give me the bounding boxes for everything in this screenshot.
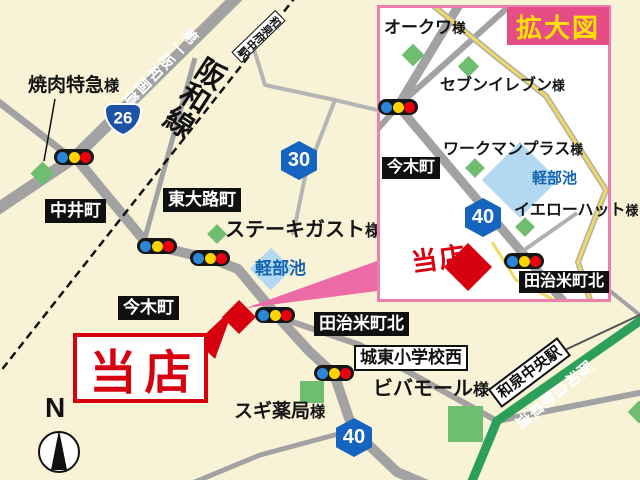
traffic-light-icon bbox=[54, 149, 94, 165]
route-26-badge: 26 bbox=[103, 102, 143, 136]
traffic-light-icon bbox=[190, 250, 230, 266]
inset-landmark-seven-eleven: セブンイレブン様 bbox=[440, 77, 565, 95]
town-higashioji: 東大路町 bbox=[163, 188, 241, 212]
town-joto-shogakko-nishi: 城東小学校西 bbox=[354, 345, 468, 371]
road-minor-north bbox=[253, 46, 377, 110]
town-tajirimachi-kita: 田治米町北 bbox=[314, 312, 409, 336]
landmark-yakiniku-tokkyu: 焼肉特急様 bbox=[28, 76, 119, 97]
compass-north-label: N bbox=[45, 392, 65, 424]
inset-landmark-okuwa: オークワ様 bbox=[384, 19, 466, 38]
access-map: 第一阪和国道 阪和線 和泉府中駅 阪和自動車道 和泉中央駅 軽部池 26 30 … bbox=[0, 0, 640, 480]
pond-karube-label: 軽部池 bbox=[255, 260, 306, 279]
landmark-steak-gusto: ステーキガスト様 bbox=[225, 219, 381, 241]
landmark-sugi-pharmacy: スギ薬局様 bbox=[234, 402, 325, 423]
landmark-viva-mall: ビバモール様 bbox=[373, 378, 489, 400]
traffic-light-icon bbox=[314, 365, 354, 381]
traffic-light-icon bbox=[255, 307, 295, 323]
inset-landmark-workman-plus: ワークマンプラス様 bbox=[443, 141, 583, 159]
traffic-light-icon bbox=[137, 238, 177, 254]
park-square bbox=[448, 406, 483, 442]
inset-enlarged-map: 40 オークワ様 セブンイレブン様 ワークマンプラス様 イエローハット様 軽部池… bbox=[377, 5, 611, 302]
park-square bbox=[300, 381, 324, 403]
inset-store-label: 当店 bbox=[409, 235, 470, 279]
store-label-box: 当店 bbox=[73, 333, 208, 403]
road-corner bbox=[610, 291, 640, 320]
inset-town-tajirimachi-kita: 田治米町北 bbox=[519, 271, 609, 293]
inset-traffic-light-icon bbox=[504, 253, 544, 269]
inset-traffic-light-icon bbox=[378, 99, 418, 115]
town-nakai: 中井町 bbox=[45, 199, 106, 223]
svg-text:26: 26 bbox=[114, 109, 133, 128]
leader-line bbox=[44, 99, 55, 161]
town-imaki: 今木町 bbox=[118, 296, 179, 320]
inset-title: 拡大図 bbox=[507, 7, 609, 45]
road-bottom-connector bbox=[185, 430, 353, 480]
inset-town-imaki: 今木町 bbox=[382, 157, 440, 179]
store-location-diamond bbox=[222, 300, 256, 334]
inset-pond-karube-label: 軽部池 bbox=[532, 171, 577, 188]
inset-landmark-yellow-hat: イエローハット様 bbox=[514, 202, 638, 220]
